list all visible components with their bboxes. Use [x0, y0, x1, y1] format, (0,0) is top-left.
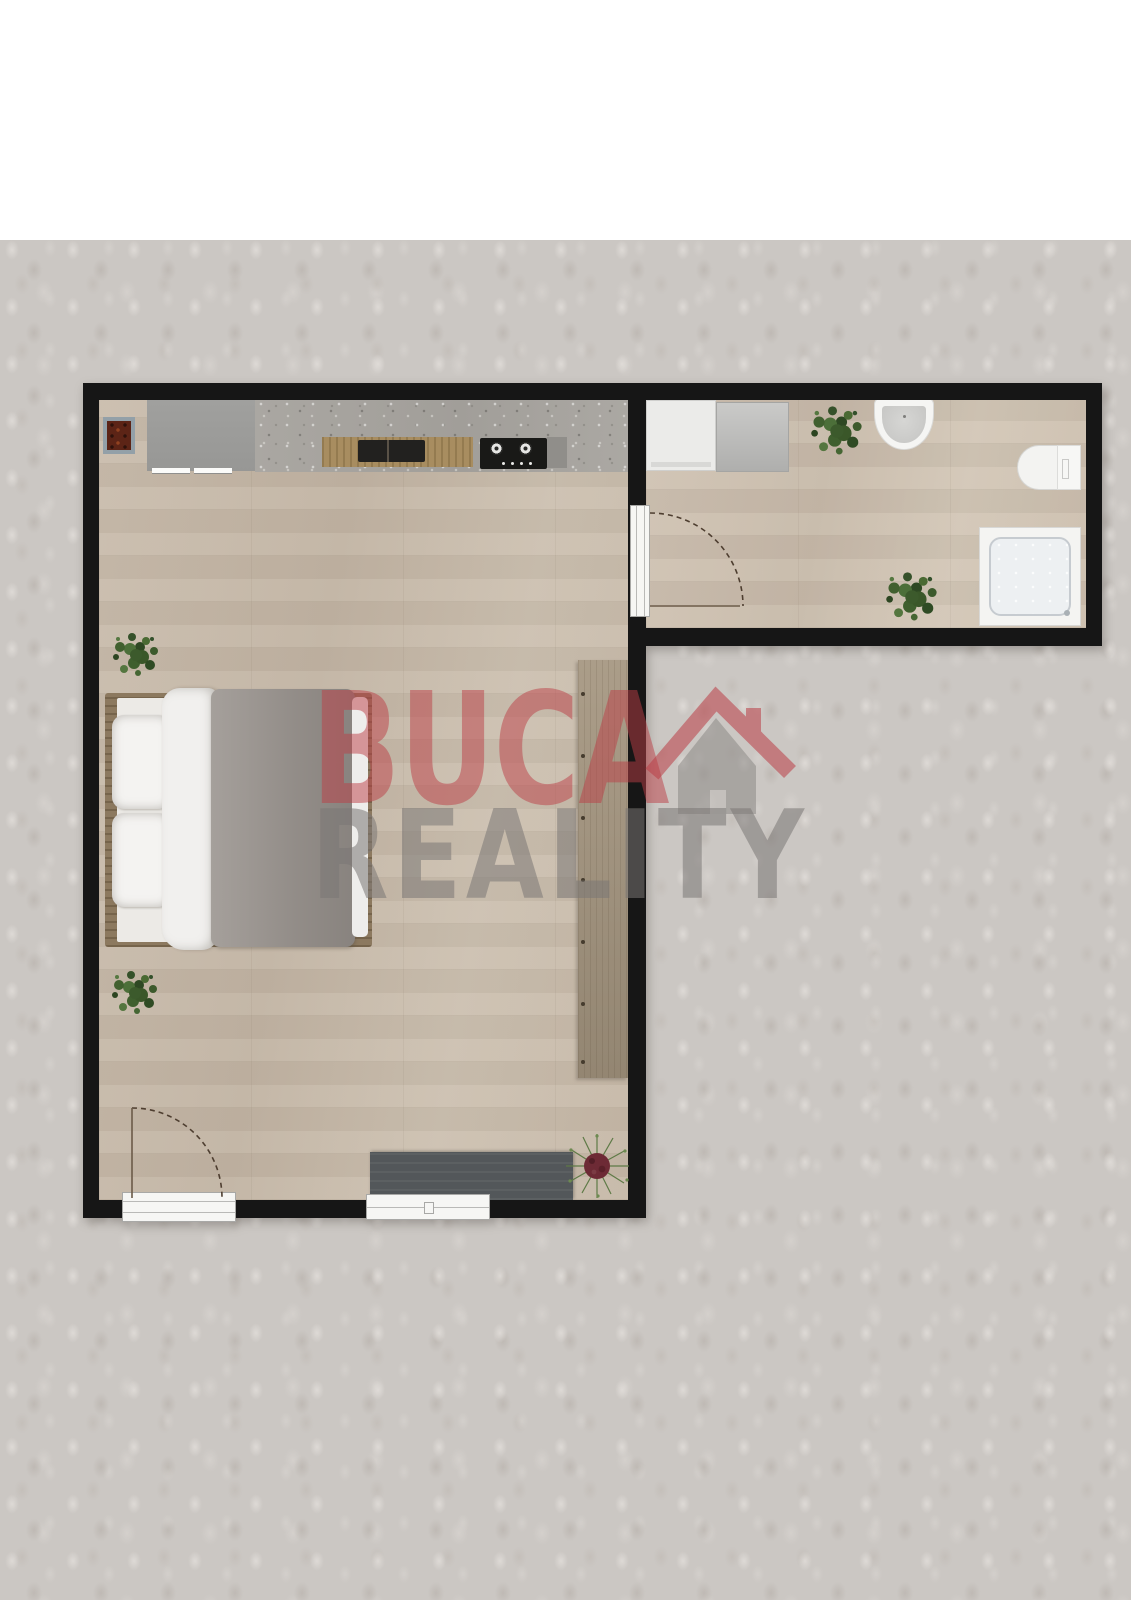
cooktop [480, 438, 547, 469]
potted-plant-icon [107, 965, 163, 1021]
frame-line [636, 506, 637, 616]
bathroom-door-frame [630, 505, 650, 617]
toilet-bowl [1017, 445, 1061, 490]
burner [519, 442, 532, 455]
burner [490, 442, 503, 455]
bathroom-cabinet [716, 402, 789, 472]
rug [103, 417, 135, 454]
frame-line [644, 506, 645, 616]
sink-divider [387, 440, 389, 462]
counter-end-panel [547, 437, 567, 468]
washing-machine [646, 400, 716, 471]
kitchen-sink [358, 440, 425, 462]
entry-door-frame [122, 1192, 236, 1222]
potted-plant-icon [108, 627, 164, 683]
sheet-edge [352, 697, 368, 937]
knob [520, 462, 523, 465]
knob [511, 462, 514, 465]
apartment-floorplan [0, 0, 1131, 1600]
cabinet-handle [194, 468, 232, 474]
potted-plant-icon [806, 400, 869, 463]
wall-right-bathroom [1086, 383, 1102, 646]
wall-bottom-bathroom [646, 628, 1102, 646]
shower-drain [1064, 610, 1070, 616]
wall-top [83, 383, 1102, 400]
cabinet-handle [152, 468, 190, 474]
shower [979, 527, 1081, 626]
toilet [1017, 445, 1081, 490]
tv-stand [370, 1152, 573, 1200]
floorplan-image: BUCA REALITY [0, 0, 1131, 1600]
wall-left [83, 383, 99, 1218]
refrigerator [147, 400, 255, 471]
window-mullion [424, 1202, 434, 1214]
faucet-dot [903, 415, 906, 418]
potted-plant-icon [881, 566, 944, 629]
toilet-tank [1057, 445, 1081, 490]
folded-blanket [162, 688, 218, 950]
window-frame [366, 1194, 490, 1220]
knob [529, 462, 532, 465]
shower-tray [989, 537, 1071, 616]
basin-bowl [882, 406, 926, 443]
knob [502, 462, 505, 465]
toilet-flush [1062, 459, 1069, 479]
frame-line [123, 1201, 235, 1202]
duvet [211, 689, 355, 947]
frame-line [123, 1212, 235, 1213]
double-bed [105, 693, 372, 947]
kitchen-counter [322, 437, 473, 467]
wardrobe [578, 660, 628, 1078]
